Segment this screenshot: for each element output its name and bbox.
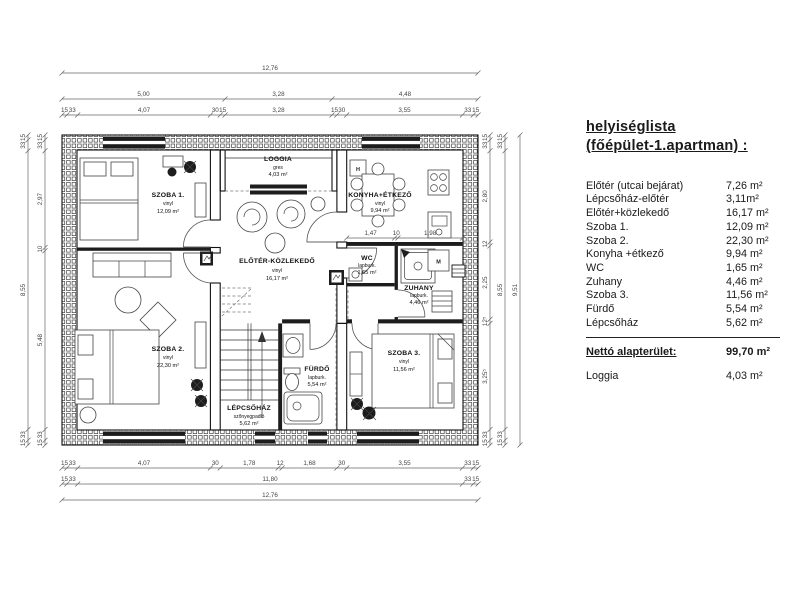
furniture-konyha: H	[350, 160, 451, 238]
wall-vent	[452, 265, 465, 277]
svg-text:15: 15	[61, 460, 69, 467]
dim-chain-top-detail: 15334,0730153,2815303,553315	[60, 107, 481, 118]
dim-chain-bottom-detail: 15334,07301,78121,68303,553315	[60, 460, 481, 471]
room-area: 5,62 m²	[726, 317, 780, 331]
svg-text:KONYHA+ÉTKEZŐ: KONYHA+ÉTKEZŐ	[348, 190, 412, 199]
svg-text:5,54 m²: 5,54 m²	[308, 382, 327, 388]
svg-text:33: 33	[37, 141, 44, 149]
svg-text:4,46 m²: 4,46 m²	[410, 300, 429, 306]
svg-text:1,68: 1,68	[303, 460, 316, 467]
room-label-loggia: LOGGIA gres 4,03 m²	[264, 156, 292, 178]
svg-text:3,55: 3,55	[398, 107, 411, 114]
room-label-szoba1: SZOBA 1. vinyl 12,09 m²	[152, 192, 185, 215]
svg-text:12,76: 12,76	[262, 65, 278, 72]
svg-text:11,56 m²: 11,56 m²	[393, 367, 415, 373]
svg-text:15: 15	[20, 439, 27, 447]
svg-text:5,00: 5,00	[137, 91, 150, 98]
svg-text:15: 15	[482, 439, 489, 447]
svg-text:ZUHANY: ZUHANY	[404, 285, 434, 292]
svg-text:2,97: 2,97	[37, 192, 44, 205]
svg-text:30: 30	[338, 460, 346, 467]
svg-text:WC: WC	[361, 255, 373, 262]
door-konyha	[307, 212, 337, 242]
room-name: Lépcsőház-előtér	[586, 193, 726, 207]
svg-text:SZOBA 1.: SZOBA 1.	[152, 192, 185, 199]
room-list-title-line2: (főépület-1.apartman) :	[586, 138, 748, 154]
svg-text:15: 15	[61, 107, 69, 114]
armchair	[277, 200, 305, 228]
svg-text:ELŐTÉR-KÖZLEKEDŐ: ELŐTÉR-KÖZLEKEDŐ	[239, 256, 315, 265]
room-area: 3,11m²	[726, 193, 780, 207]
room-area: 7,26 m²	[726, 180, 780, 194]
dim-chain-bottom-total: 12,76	[60, 492, 481, 503]
room-list-row: Szoba 2.22,30 m²	[586, 235, 780, 249]
svg-text:gres: gres	[273, 165, 283, 171]
room-name: Konyha +étkező	[586, 248, 726, 262]
room-name: Zuhany	[586, 276, 726, 290]
svg-text:33: 33	[37, 431, 44, 439]
svg-text:30: 30	[212, 460, 220, 467]
svg-text:1,98: 1,98	[424, 230, 437, 237]
svg-text:11,80: 11,80	[262, 476, 278, 483]
svg-text:3,55: 3,55	[398, 460, 411, 467]
svg-text:9,94 m²: 9,94 m²	[371, 208, 390, 214]
room-label-furdo: FÜRDŐ lapburk. 5,54 m²	[304, 364, 329, 388]
svg-text:15: 15	[497, 439, 504, 447]
svg-text:lapburk.: lapburk.	[358, 263, 376, 269]
svg-text:4,48: 4,48	[399, 91, 412, 98]
svg-text:1,65 m²: 1,65 m²	[358, 270, 377, 276]
svg-text:12,76: 12,76	[262, 492, 278, 499]
total-value: 99,70 m²	[726, 345, 780, 359]
svg-text:FÜRDŐ: FÜRDŐ	[304, 364, 329, 373]
room-list-rows: Előtér (utcai bejárat)7,26 m²Lépcsőház-e…	[586, 180, 780, 331]
svg-text:33: 33	[69, 460, 77, 467]
staircase	[220, 288, 278, 418]
room-area: 22,30 m²	[726, 235, 780, 249]
svg-text:LÉPCSŐHÁZ: LÉPCSŐHÁZ	[227, 403, 271, 412]
svg-text:33: 33	[69, 476, 77, 483]
dim-chain-top-mid: 5,003,284,48	[60, 91, 481, 102]
svg-text:15: 15	[37, 133, 44, 141]
svg-text:15: 15	[482, 133, 489, 141]
room-list-row: Konyha +étkező9,94 m²	[586, 248, 780, 262]
svg-text:15: 15	[497, 133, 504, 141]
svg-text:3,28: 3,28	[272, 107, 285, 114]
svg-text:8,55: 8,55	[20, 283, 27, 296]
loggia-label: Loggia	[586, 369, 726, 383]
room-name: Szoba 2.	[586, 235, 726, 249]
svg-text:12,09 m²: 12,09 m²	[157, 209, 179, 215]
svg-text:30: 30	[338, 107, 346, 114]
svg-text:22,30 m²: 22,30 m²	[157, 363, 179, 369]
svg-text:33: 33	[482, 431, 489, 439]
room-name: WC	[586, 262, 726, 276]
furniture-szoba2	[75, 253, 207, 423]
room-list-divider	[586, 337, 780, 338]
dim-chain-bottom-mid: 153311,803315	[60, 476, 481, 487]
svg-text:33: 33	[20, 431, 27, 439]
sofa-szoba2	[93, 253, 171, 277]
svg-text:H: H	[356, 167, 360, 173]
room-list-row: WC1,65 m²	[586, 262, 780, 276]
svg-text:15: 15	[472, 476, 480, 483]
svg-text:M: M	[436, 260, 441, 266]
room-list-row: Zuhany4,46 m²	[586, 276, 780, 290]
room-label-lepcsohaz: LÉPCSŐHÁZ szőnyegpadló 5,62 m²	[227, 403, 271, 427]
total-label: Nettó alapterület:	[586, 345, 726, 359]
svg-text:33: 33	[497, 431, 504, 439]
side-table	[265, 233, 285, 253]
svg-text:4,03 m²: 4,03 m²	[269, 172, 288, 178]
room-name: Szoba 1.	[586, 221, 726, 235]
dim-chain-left-detail: 15332,97105,483315	[37, 133, 48, 448]
svg-text:1,78: 1,78	[243, 460, 256, 467]
dim-chain-right-mid: 15338,553315	[497, 133, 508, 448]
svg-text:10: 10	[393, 230, 401, 237]
svg-text:15: 15	[61, 476, 69, 483]
svg-text:5,48: 5,48	[37, 334, 44, 347]
dim-chain-right-detail: 15332,80122,2512⁵3,25⁵3315	[482, 133, 493, 448]
room-area: 9,94 m²	[726, 248, 780, 262]
room-name: Szoba 3.	[586, 289, 726, 303]
dim-chain-left-outer: 15338,553315	[20, 133, 31, 448]
room-area: 11,56 m²	[726, 289, 780, 303]
svg-text:33: 33	[464, 460, 472, 467]
svg-text:3,25⁵: 3,25⁵	[482, 369, 489, 384]
room-area: 1,65 m²	[726, 262, 780, 276]
svg-text:1,47: 1,47	[365, 230, 378, 237]
room-name: Előtér (utcai bejárat)	[586, 180, 726, 194]
svg-text:12: 12	[482, 240, 489, 248]
bathtub	[284, 392, 322, 424]
svg-text:vinyl: vinyl	[399, 359, 409, 365]
svg-text:4,07: 4,07	[138, 107, 151, 114]
toilet	[286, 374, 299, 391]
svg-text:vinyl: vinyl	[163, 201, 173, 207]
svg-text:33: 33	[464, 107, 472, 114]
room-area: 12,09 m²	[726, 221, 780, 235]
room-area: 16,17 m²	[726, 207, 780, 221]
svg-text:vinyl: vinyl	[163, 355, 173, 361]
svg-text:szőnyegpadló: szőnyegpadló	[234, 414, 265, 420]
svg-text:10: 10	[37, 245, 44, 253]
room-label-wc: WC lapburk. 1,65 m²	[358, 255, 377, 276]
room-label-eloter: ELŐTÉR-KÖZLEKEDŐ vinyl 16,17 m²	[239, 256, 315, 282]
svg-text:15: 15	[472, 460, 480, 467]
desk-szoba1	[195, 183, 206, 217]
svg-text:5,62 m²: 5,62 m²	[240, 421, 259, 427]
svg-text:2,25: 2,25	[482, 276, 489, 289]
furniture-szoba1	[80, 156, 206, 240]
room-name: Előtér+közlekedő	[586, 207, 726, 221]
armchair	[237, 202, 267, 232]
room-list-row: Fürdő5,54 m²	[586, 303, 780, 317]
svg-text:15: 15	[472, 107, 480, 114]
room-list-row: Szoba 1.12,09 m²	[586, 221, 780, 235]
svg-text:33: 33	[482, 141, 489, 149]
room-list-panel: helyiséglista (főépület-1.apartman) : El…	[586, 118, 780, 383]
tv-board	[195, 322, 206, 368]
svg-text:12: 12	[277, 460, 285, 467]
floor-plan-drawing: H M	[0, 0, 560, 540]
room-list-title-line1: helyiséglista	[586, 119, 676, 135]
svg-text:33: 33	[69, 107, 77, 114]
svg-text:12⁵: 12⁵	[482, 316, 489, 326]
door-furdo	[310, 323, 336, 349]
room-name: Lépcsőház	[586, 317, 726, 331]
svg-text:16,17 m²: 16,17 m²	[266, 276, 288, 282]
room-area: 5,54 m²	[726, 303, 780, 317]
room-list-row: Előtér (utcai bejárat)7,26 m²	[586, 180, 780, 194]
room-list-total-row: Nettó alapterület: 99,70 m²	[586, 345, 780, 359]
door-szoba1	[183, 220, 210, 247]
doors	[183, 212, 425, 349]
svg-text:3,28: 3,28	[272, 91, 285, 98]
room-area: 4,46 m²	[726, 276, 780, 290]
furniture-szoba3	[350, 334, 454, 420]
svg-text:vinyl: vinyl	[272, 268, 282, 274]
svg-text:2,80: 2,80	[482, 190, 489, 203]
room-list-title: helyiséglista (főépület-1.apartman) :	[586, 118, 780, 156]
loggia-value: 4,03 m²	[726, 369, 780, 383]
svg-text:15: 15	[37, 439, 44, 447]
floorplan-page: H M	[0, 0, 800, 600]
svg-text:vinyl: vinyl	[375, 201, 385, 207]
stove	[428, 170, 449, 195]
svg-text:LOGGIA: LOGGIA	[264, 156, 292, 163]
svg-text:lapburk.: lapburk.	[308, 375, 326, 381]
svg-text:9,51: 9,51	[512, 283, 519, 296]
round-table	[115, 287, 141, 313]
dim-chain-right-total: 9,51	[512, 133, 523, 448]
svg-text:lapburk.: lapburk.	[410, 293, 428, 299]
svg-text:8,55: 8,55	[497, 283, 504, 296]
room-list-row: Előtér+közlekedő16,17 m²	[586, 207, 780, 221]
dim-chain-top-total: 12,76	[60, 65, 481, 76]
radiator	[432, 291, 452, 312]
room-list-row: Lépcsőház5,62 m²	[586, 317, 780, 331]
room-name: Fürdő	[586, 303, 726, 317]
room-label-zuhany: ZUHANY lapburk. 4,46 m²	[404, 285, 434, 306]
room-list-row: Szoba 3.11,56 m²	[586, 289, 780, 303]
svg-text:33: 33	[20, 141, 27, 149]
svg-text:SZOBA 3.: SZOBA 3.	[388, 350, 421, 357]
svg-text:4,07: 4,07	[138, 460, 151, 467]
svg-text:15: 15	[219, 107, 227, 114]
svg-text:SZOBA 2.: SZOBA 2.	[152, 346, 185, 353]
room-list-row: Lépcsőház-előtér3,11m²	[586, 193, 780, 207]
svg-text:15: 15	[20, 133, 27, 141]
room-list-loggia-row: Loggia 4,03 m²	[586, 369, 780, 383]
svg-text:33: 33	[464, 476, 472, 483]
svg-text:33: 33	[497, 141, 504, 149]
